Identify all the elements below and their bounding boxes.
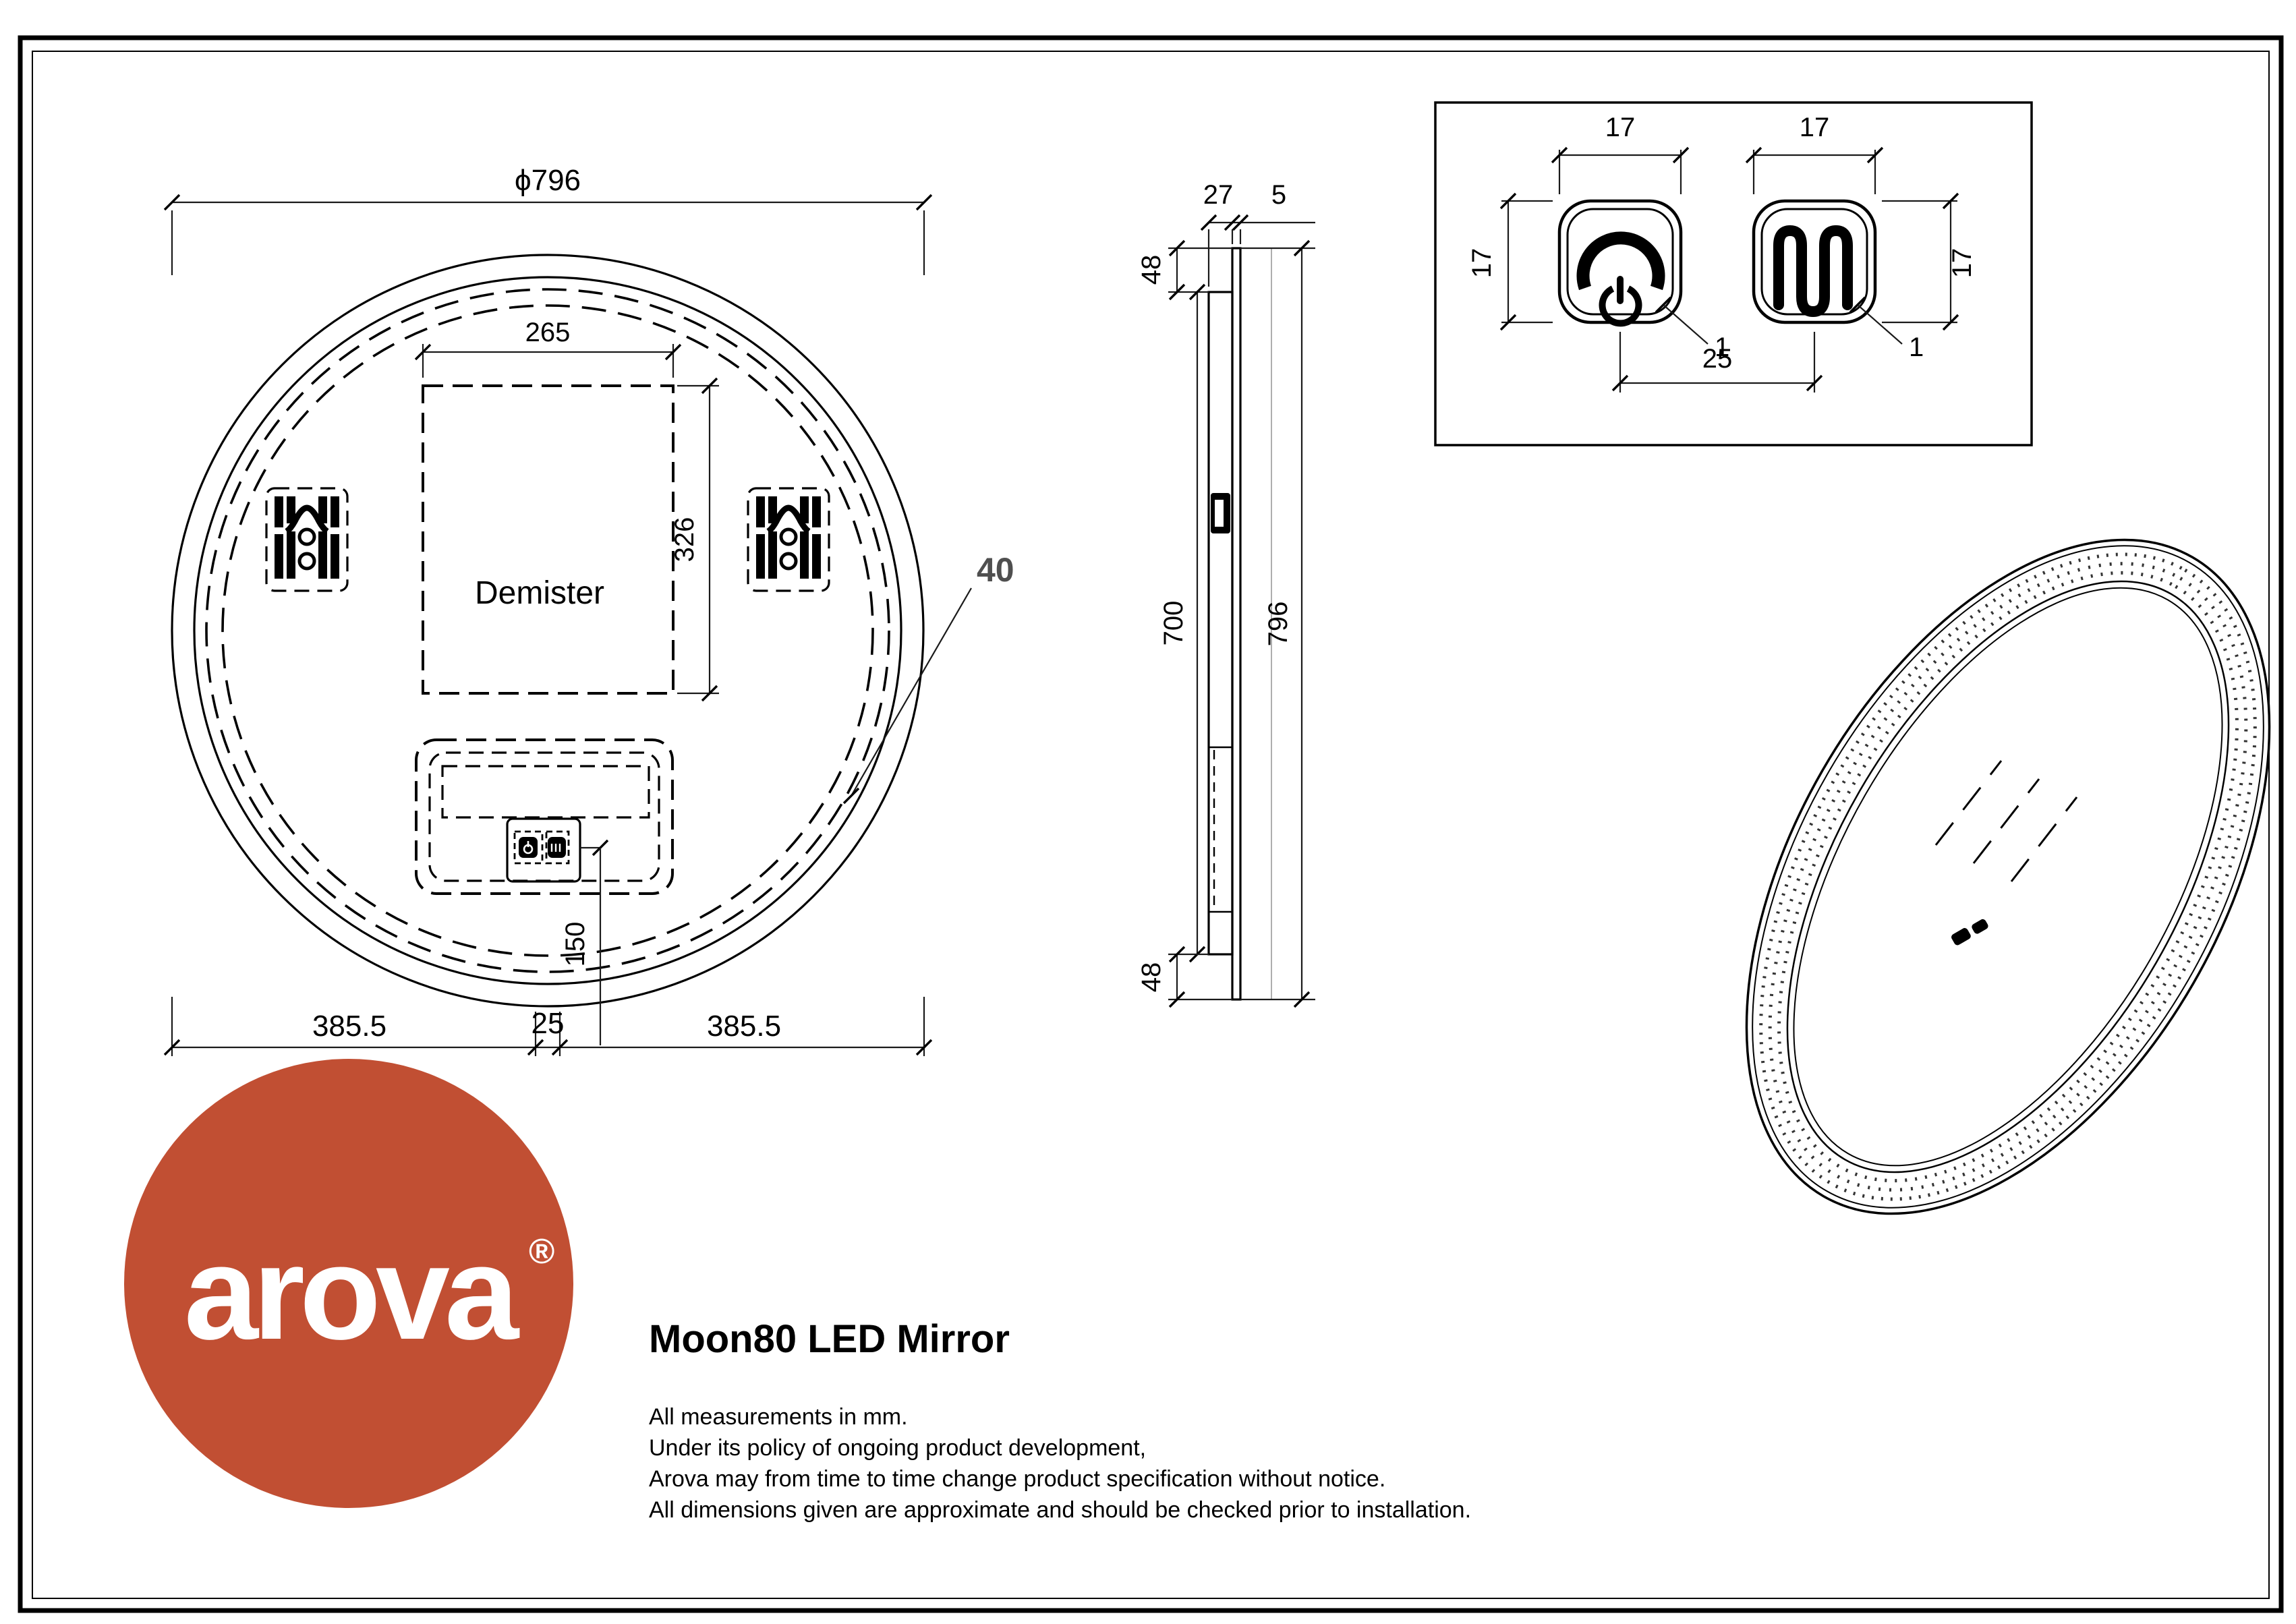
dim-body-height-text: 700 bbox=[1159, 601, 1188, 646]
power-icon bbox=[519, 837, 538, 858]
dim-btn2-height: 17 bbox=[1882, 194, 1977, 330]
detail-frame bbox=[1435, 103, 2032, 445]
mirror-glints bbox=[1936, 761, 2077, 881]
dim-demister-height: 326 bbox=[670, 378, 719, 701]
side-glass bbox=[1232, 248, 1240, 999]
corner1-text: 1 bbox=[1715, 332, 1729, 362]
power-icon bbox=[1583, 238, 1659, 324]
dim-bottom-left-text: 385.5 bbox=[312, 1010, 386, 1043]
dim-btn2-height-text: 17 bbox=[1947, 248, 1977, 279]
notes-block: All measurements in mm. Under its policy… bbox=[649, 1401, 1471, 1526]
dim-btn1-width-text: 17 bbox=[1605, 113, 1636, 142]
frosted-band-stipple bbox=[1659, 471, 2296, 1283]
product-title: Moon80 LED Mirror bbox=[649, 1316, 1010, 1362]
note-line: All dimensions given are approximate and… bbox=[649, 1495, 1471, 1526]
dim-btn2-width-text: 17 bbox=[1800, 113, 1830, 142]
corner2-text: 1 bbox=[1909, 332, 1924, 362]
dim-total-height: 796 bbox=[1240, 241, 1315, 1007]
dim-btn1-width: 17 bbox=[1552, 113, 1688, 194]
dim-depth-text: 27 bbox=[1203, 180, 1234, 210]
dim-demister-width-text: 265 bbox=[525, 318, 571, 347]
dim-diameter-text: ϕ796 bbox=[515, 164, 581, 197]
dim-bottom-offset-text: 48 bbox=[1137, 962, 1166, 993]
note-line: Under its policy of ongoing product deve… bbox=[649, 1432, 1471, 1463]
right-bracket bbox=[748, 488, 829, 591]
left-bracket bbox=[266, 488, 347, 591]
dim-btn1-height-text: 17 bbox=[1467, 248, 1497, 279]
callout-corner2: 1 bbox=[1850, 297, 1924, 362]
side-view: 27 5 48 700 48 bbox=[1137, 180, 1315, 1007]
dim-bottom-right-text: 385.5 bbox=[707, 1010, 781, 1043]
dim-top-offset-text: 48 bbox=[1137, 255, 1166, 285]
dim-diameter: ϕ796 bbox=[165, 164, 931, 275]
dim-glass-text: 5 bbox=[1271, 180, 1286, 210]
dim-btn1-height: 17 bbox=[1467, 194, 1553, 330]
note-line: All measurements in mm. bbox=[649, 1401, 1471, 1432]
demister-label: Demister bbox=[475, 575, 604, 611]
side-backing bbox=[1209, 292, 1232, 954]
heater-icon bbox=[1779, 231, 1847, 312]
note-line: Arova may from time to time change produ… bbox=[649, 1463, 1471, 1495]
brand-name: arova bbox=[124, 1226, 573, 1360]
arova-logo: arova ® bbox=[124, 1059, 573, 1508]
junction-box-drawing bbox=[416, 740, 672, 894]
dim-demister-height-text: 326 bbox=[670, 517, 699, 562]
button-detail-view: 17 17 17 17 bbox=[1435, 103, 2032, 445]
dim-demister-width: 265 bbox=[415, 318, 681, 378]
power-icon bbox=[1950, 927, 1972, 946]
callout-corner1: 1 bbox=[1656, 297, 1729, 362]
dim-btn2-width: 17 bbox=[1746, 113, 1883, 194]
frame-band-text: 40 bbox=[977, 551, 1014, 589]
dim-sensor-offset: 150 bbox=[561, 840, 608, 1045]
heater-icon bbox=[1970, 918, 1989, 935]
heater-icon bbox=[548, 837, 566, 858]
dim-sensor-offset-text: 150 bbox=[561, 922, 590, 967]
registered-mark: ® bbox=[529, 1231, 554, 1272]
dim-bottom-offset: 48 bbox=[1137, 947, 1232, 1007]
dim-total-height-text: 796 bbox=[1263, 602, 1293, 647]
front-view: Demister ϕ796 bbox=[165, 164, 1014, 1056]
dim-top-offset: 48 bbox=[1137, 241, 1232, 299]
dim-depth: 27 5 bbox=[1201, 180, 1315, 287]
demister-pad-outline bbox=[423, 386, 673, 693]
dim-body-height: 700 bbox=[1159, 285, 1205, 962]
perspective-view bbox=[1638, 451, 2296, 1303]
dim-bottom-center-text: 25 bbox=[532, 1007, 565, 1040]
